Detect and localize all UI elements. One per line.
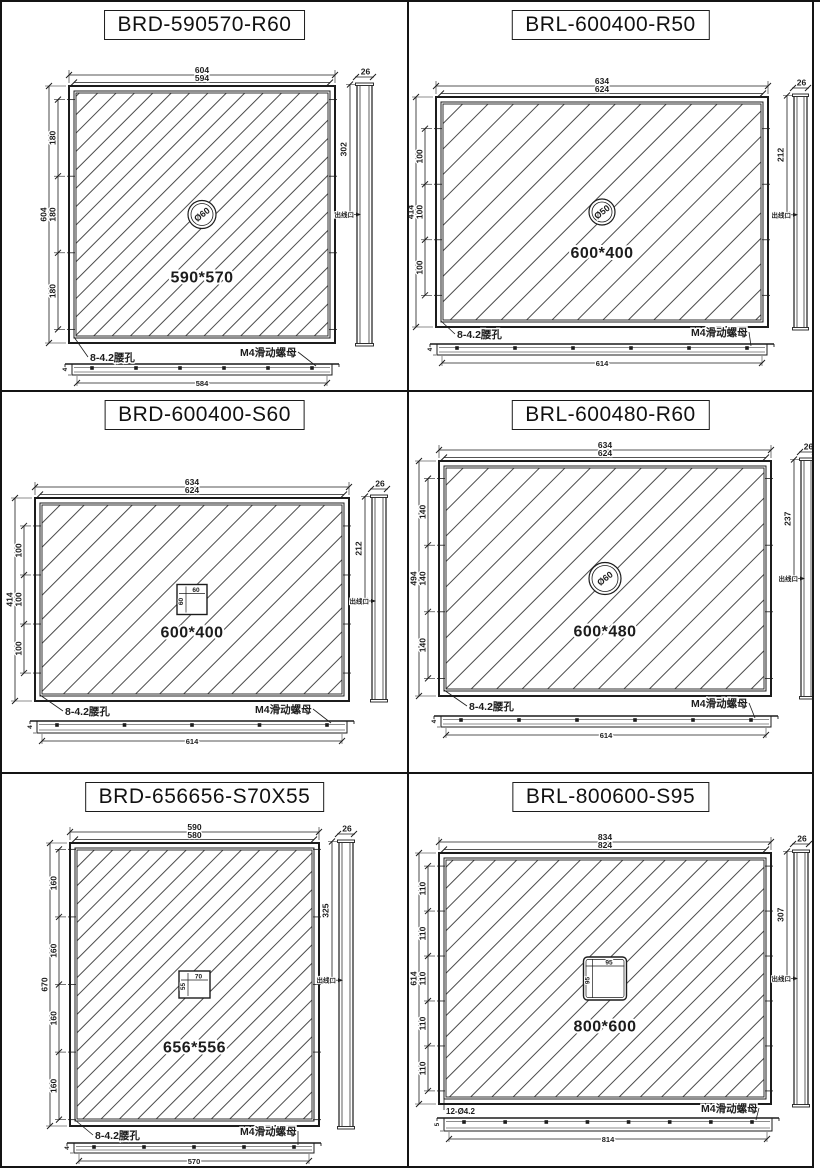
panel-brl-800600-s95: BRL-800600-S95 8348246141101101101101109… — [409, 774, 812, 1166]
nut-leader-label: M4滑动螺母 — [240, 1125, 298, 1145]
hole-leader-label: 8-4.2腰孔 — [441, 321, 502, 341]
nut-leader-label: M4滑动螺母 — [255, 703, 331, 723]
panel-title: BRL-600480-R60 — [511, 400, 709, 430]
svg-text:600*400: 600*400 — [160, 625, 223, 642]
nut-leader-label: M4滑动螺母 — [691, 326, 751, 346]
svg-text:140: 140 — [418, 638, 428, 652]
svg-text:110: 110 — [418, 926, 428, 940]
svg-text:614: 614 — [186, 737, 199, 746]
hole-leader-label: 8-4.2腰孔 — [75, 1120, 140, 1142]
svg-text:出线口: 出线口 — [772, 974, 792, 983]
panel-title: BRD-600400-S60 — [104, 400, 305, 430]
svg-text:M4滑动螺母: M4滑动螺母 — [691, 697, 748, 710]
svg-text:814: 814 — [602, 1135, 615, 1144]
svg-text:212: 212 — [354, 541, 364, 555]
hole-leader-label: 8-4.2腰孔 — [74, 337, 135, 364]
cutout: 9595 — [584, 957, 627, 1000]
svg-text:110: 110 — [418, 881, 428, 895]
panel-drawing: 604594604180180180Ø60590*57026302出线口4584… — [2, 2, 407, 390]
svg-text:302: 302 — [339, 142, 349, 156]
svg-text:584: 584 — [196, 379, 209, 388]
svg-text:110: 110 — [418, 971, 428, 985]
size-label: 656*556 — [163, 1040, 226, 1057]
drawing-sheet: BRD-590570-R60 604594604180180180Ø60590*… — [0, 0, 820, 1175]
svg-text:4: 4 — [64, 1146, 71, 1150]
svg-text:624: 624 — [595, 84, 609, 94]
svg-text:M4滑动螺母: M4滑动螺母 — [240, 346, 297, 359]
cutout: Ø60 — [589, 563, 621, 595]
svg-text:26: 26 — [804, 442, 812, 452]
svg-text:95: 95 — [585, 977, 592, 985]
svg-text:8-4.2腰孔: 8-4.2腰孔 — [469, 700, 514, 713]
svg-text:8-4.2腰孔: 8-4.2腰孔 — [457, 328, 502, 341]
side-profile-view: 26237 — [783, 442, 813, 700]
bottom-rail-view: 4614 — [27, 721, 354, 746]
panel-title: BRD-590570-R60 — [104, 10, 306, 40]
svg-text:95: 95 — [605, 960, 613, 967]
nut-leader-label: M4滑动螺母 — [240, 346, 316, 366]
svg-text:180: 180 — [48, 131, 58, 145]
svg-text:M4滑动螺母: M4滑动螺母 — [701, 1102, 758, 1115]
bottom-rail-view: 4584 — [62, 364, 339, 388]
svg-text:160: 160 — [49, 1011, 59, 1025]
svg-text:237: 237 — [783, 511, 793, 525]
svg-text:100: 100 — [415, 260, 425, 274]
svg-text:M4滑动螺母: M4滑动螺母 — [240, 1125, 297, 1138]
svg-text:8-4.2腰孔: 8-4.2腰孔 — [95, 1129, 140, 1142]
panel-drawing: 5905806701601601601607055656*55626325出线口… — [2, 774, 407, 1166]
svg-text:8-4.2腰孔: 8-4.2腰孔 — [90, 351, 135, 364]
svg-text:4: 4 — [431, 719, 438, 723]
svg-text:100: 100 — [415, 149, 425, 163]
svg-text:4: 4 — [427, 347, 434, 351]
svg-text:60: 60 — [178, 598, 185, 606]
panel-brl-600480-r60: BRL-600480-R60 634624494140140140Ø60600*… — [409, 392, 812, 772]
cutout: 7055 — [179, 971, 210, 998]
svg-text:出线口: 出线口 — [317, 976, 337, 985]
svg-text:26: 26 — [342, 824, 352, 834]
svg-text:8-4.2腰孔: 8-4.2腰孔 — [65, 705, 110, 718]
nut-leader-label: M4滑动螺母 — [691, 697, 755, 718]
svg-text:594: 594 — [195, 73, 209, 83]
panel-brl-600400-r50: BRL-600400-R50 634624414100100100Ø50600*… — [409, 2, 812, 390]
side-profile-view: 26212 — [776, 78, 812, 331]
svg-text:4: 4 — [27, 725, 34, 729]
svg-text:55: 55 — [180, 983, 187, 991]
svg-text:26: 26 — [797, 78, 807, 88]
panel-title: BRD-656656-S70X55 — [85, 782, 325, 812]
svg-text:180: 180 — [48, 284, 58, 298]
svg-text:26: 26 — [361, 67, 371, 77]
svg-text:600*480: 600*480 — [573, 624, 636, 641]
panel-drawing: 6346244141001001006060600*40026212出线口461… — [2, 392, 407, 772]
panel-drawing: 8348246141101101101101109595800*60026307… — [409, 774, 812, 1166]
svg-text:100: 100 — [415, 205, 425, 219]
svg-text:100: 100 — [14, 641, 24, 655]
svg-text:600*400: 600*400 — [570, 245, 633, 262]
svg-text:590*570: 590*570 — [170, 270, 233, 287]
svg-text:160: 160 — [49, 876, 59, 890]
svg-text:614: 614 — [600, 731, 613, 740]
cutout: Ø60 — [188, 201, 216, 229]
panel-drawing: 634624494140140140Ø60600*48026237出线口4614… — [409, 392, 812, 772]
bottom-rail-view: 4614 — [427, 344, 774, 368]
panel-brd-600400-s60: BRD-600400-S60 6346244141001001006060600… — [2, 392, 407, 772]
svg-text:110: 110 — [418, 1061, 428, 1075]
svg-text:出线口: 出线口 — [350, 596, 370, 605]
svg-text:110: 110 — [418, 1016, 428, 1030]
bottom-rail-view: 5814 — [434, 1118, 779, 1144]
hole-leader-label: 12-Ø4.2 — [444, 1098, 475, 1116]
svg-text:570: 570 — [188, 1157, 201, 1166]
svg-text:100: 100 — [14, 592, 24, 606]
size-label: 600*480 — [573, 624, 636, 641]
svg-text:800*600: 800*600 — [573, 1019, 636, 1036]
bottom-rail-view: 4570 — [64, 1143, 321, 1166]
size-label: 800*600 — [573, 1019, 636, 1036]
svg-text:140: 140 — [418, 571, 428, 585]
svg-text:M4滑动螺母: M4滑动螺母 — [691, 326, 748, 339]
svg-text:624: 624 — [598, 448, 612, 458]
size-label: 600*400 — [570, 245, 633, 262]
grid-border-right — [812, 0, 814, 1168]
svg-text:160: 160 — [49, 943, 59, 957]
svg-text:4: 4 — [62, 367, 69, 371]
cutout: Ø50 — [589, 199, 615, 225]
svg-text:26: 26 — [375, 479, 385, 489]
svg-text:出线口: 出线口 — [779, 574, 799, 583]
svg-text:100: 100 — [14, 543, 24, 557]
side-profile-view: 26307 — [776, 834, 813, 1108]
svg-text:624: 624 — [185, 485, 199, 495]
side-profile-view: 26212 — [354, 479, 391, 703]
size-label: 600*400 — [160, 625, 223, 642]
svg-text:160: 160 — [49, 1079, 59, 1093]
svg-text:5: 5 — [434, 1122, 441, 1126]
svg-text:12-Ø4.2: 12-Ø4.2 — [446, 1107, 475, 1116]
svg-text:60: 60 — [192, 587, 200, 594]
svg-text:614: 614 — [596, 359, 609, 368]
size-label: 590*570 — [170, 270, 233, 287]
svg-text:824: 824 — [598, 840, 612, 850]
cutout: 6060 — [177, 585, 207, 615]
side-profile-view: 26302 — [339, 67, 377, 347]
svg-text:M4滑动螺母: M4滑动螺母 — [255, 703, 312, 716]
svg-text:出线口: 出线口 — [335, 210, 355, 219]
svg-text:70: 70 — [195, 974, 203, 981]
svg-text:670: 670 — [40, 977, 50, 991]
panel-title: BRL-800600-S95 — [512, 782, 709, 812]
panel-drawing: 634624414100100100Ø50600*40026212出线口4614… — [409, 2, 812, 390]
bottom-rail-view: 4614 — [431, 716, 778, 740]
hole-leader-label: 8-4.2腰孔 — [444, 690, 514, 713]
svg-text:307: 307 — [776, 907, 786, 921]
panel-brd-656656-s70x55: BRD-656656-S70X55 5905806701601601601607… — [2, 774, 407, 1166]
svg-text:580: 580 — [187, 830, 201, 840]
hole-leader-label: 8-4.2腰孔 — [40, 695, 110, 718]
panel-brd-590570-r60: BRD-590570-R60 604594604180180180Ø60590*… — [2, 2, 407, 390]
svg-text:656*556: 656*556 — [163, 1040, 226, 1057]
svg-text:140: 140 — [418, 505, 428, 519]
svg-text:325: 325 — [321, 903, 331, 917]
svg-text:26: 26 — [797, 834, 807, 844]
side-profile-view: 26325 — [321, 824, 358, 1130]
svg-text:212: 212 — [776, 148, 786, 162]
svg-text:出线口: 出线口 — [772, 210, 792, 219]
svg-text:180: 180 — [48, 207, 58, 221]
panel-title: BRL-600400-R50 — [511, 10, 709, 40]
